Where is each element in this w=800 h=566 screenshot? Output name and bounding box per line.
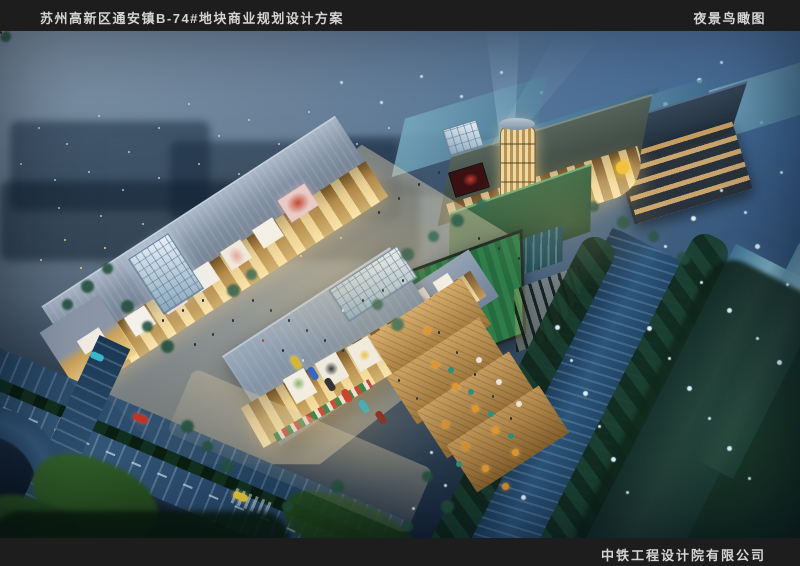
view-label: 夜景鸟瞰图 [693, 8, 766, 27]
night-aerial-rendering [0, 31, 800, 538]
page-title: 苏州高新区通安镇B-74#地块商业规划设计方案 [40, 8, 344, 27]
company-credit: 中铁工程设计院有限公司 [601, 545, 766, 564]
header-bar: 苏州高新区通安镇B-74#地块商业规划设计方案 夜景鸟瞰图 [0, 0, 800, 31]
presentation-board: 苏州高新区通安镇B-74#地块商业规划设计方案 夜景鸟瞰图 [0, 0, 800, 566]
vignette [0, 31, 800, 538]
footer-bar: 中铁工程设计院有限公司 [0, 538, 800, 566]
